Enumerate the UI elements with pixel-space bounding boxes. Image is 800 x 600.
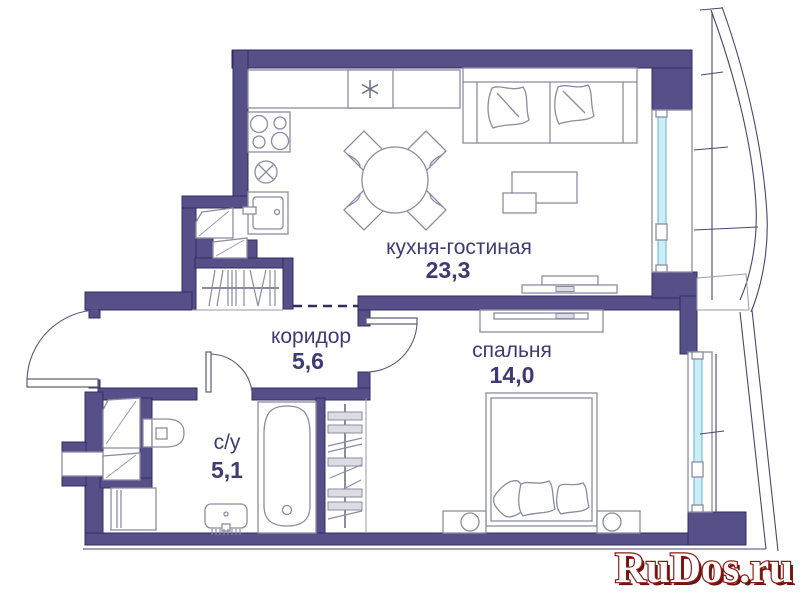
wall-bedroom-se-corner — [688, 512, 746, 545]
floor-plan: кухня-гостиная 23,3 коридор 5,6 с/у 5,1 … — [0, 0, 800, 600]
facade-curve-outer — [722, 7, 767, 312]
facade-curve-inner — [711, 10, 756, 300]
room-label-bathroom: с/у — [214, 431, 241, 454]
wall-living-bedroom — [358, 296, 697, 310]
bathroom-door-leaf — [206, 352, 211, 392]
sofa-pillow — [555, 85, 594, 124]
room-area-bedroom: 14,0 — [490, 362, 535, 388]
balcony-slab — [697, 274, 749, 310]
living-window — [652, 110, 692, 272]
toilet-cistern — [143, 419, 152, 447]
wall-north — [232, 50, 692, 68]
room-area-bathroom: 5,1 — [211, 457, 243, 483]
basin-faucet — [222, 524, 230, 531]
wall-above-bedroom-window — [680, 296, 697, 354]
wardrobe-hanger — [328, 412, 362, 420]
toilet — [143, 419, 184, 447]
coffee-table — [503, 172, 577, 213]
bedroom-door-leaf — [366, 318, 417, 324]
room-label-bedroom: спальня — [472, 339, 552, 362]
entrance-door-leaf — [27, 379, 98, 387]
washing-machine — [111, 488, 156, 530]
room-area-corridor: 5,6 — [292, 348, 324, 374]
wall-above-living-window — [652, 68, 692, 110]
bathroom-door — [206, 352, 252, 392]
bathroom-door-swing — [211, 354, 252, 392]
wall-niche — [62, 452, 103, 476]
wall-corridor-south-right — [252, 388, 370, 400]
living-window-glass — [658, 110, 666, 272]
kitchen-faucet — [243, 207, 256, 214]
entrance-jamb-top — [89, 310, 100, 318]
wall-bath-east — [316, 398, 325, 533]
wall-living-se-corner — [652, 272, 697, 298]
wall-niche-bottom — [62, 476, 86, 486]
room-label-corridor: коридор — [271, 325, 351, 348]
wardrobe-hanger — [328, 502, 362, 510]
wall-duct-right — [247, 240, 257, 258]
wall-kitchen-west — [233, 50, 248, 198]
floor-plan-svg: кухня-гостиная 23,3 коридор 5,6 с/у 5,1 … — [0, 0, 800, 600]
wall-south — [85, 533, 695, 545]
wardrobe-hanger — [328, 489, 362, 497]
tv-console-living — [522, 276, 617, 293]
wall-duct-left — [196, 238, 213, 260]
bed — [486, 393, 597, 526]
room-area-kitchen-living: 23,3 — [426, 257, 471, 283]
bed-pillow — [557, 483, 589, 514]
sofa-pillow — [488, 87, 529, 128]
bedroom-window — [688, 352, 712, 512]
bed-pillow — [519, 481, 555, 516]
wall-entry — [85, 292, 192, 310]
wall-bath-west-top — [85, 392, 103, 452]
wardrobe — [328, 398, 366, 533]
wall-closet-east — [283, 258, 293, 309]
wall-closet-top — [195, 258, 293, 268]
washbasin — [205, 504, 247, 535]
wall-jog-top — [182, 196, 248, 208]
tv-console-bedroom — [480, 310, 603, 332]
facade-slant-outer — [752, 310, 778, 551]
nightstand-right — [597, 511, 640, 533]
wall-niche-top — [62, 442, 86, 452]
living-window-sash — [656, 224, 667, 240]
bedroom-door-swing — [368, 324, 417, 372]
watermark-text: RuDos.ru — [615, 545, 793, 592]
sofa — [463, 68, 637, 143]
room-label-kitchen-living: кухня-гостиная — [386, 236, 532, 259]
bedroom-window-glass — [694, 352, 702, 512]
dining-table — [362, 147, 428, 213]
walls — [62, 50, 746, 545]
entry-closet — [192, 270, 283, 310]
bedroom-door — [366, 318, 417, 372]
watermark: RuDos.ru RuDos.ru — [615, 545, 796, 595]
entrance-door — [27, 310, 98, 387]
entrance-door-swing — [27, 310, 98, 379]
bathtub — [258, 402, 316, 533]
dining-set — [344, 131, 446, 230]
bedroom-window-sash — [692, 462, 703, 477]
nightstand-left — [443, 511, 486, 533]
wardrobe-hanger — [328, 458, 362, 466]
wardrobe-hanger — [328, 425, 362, 433]
